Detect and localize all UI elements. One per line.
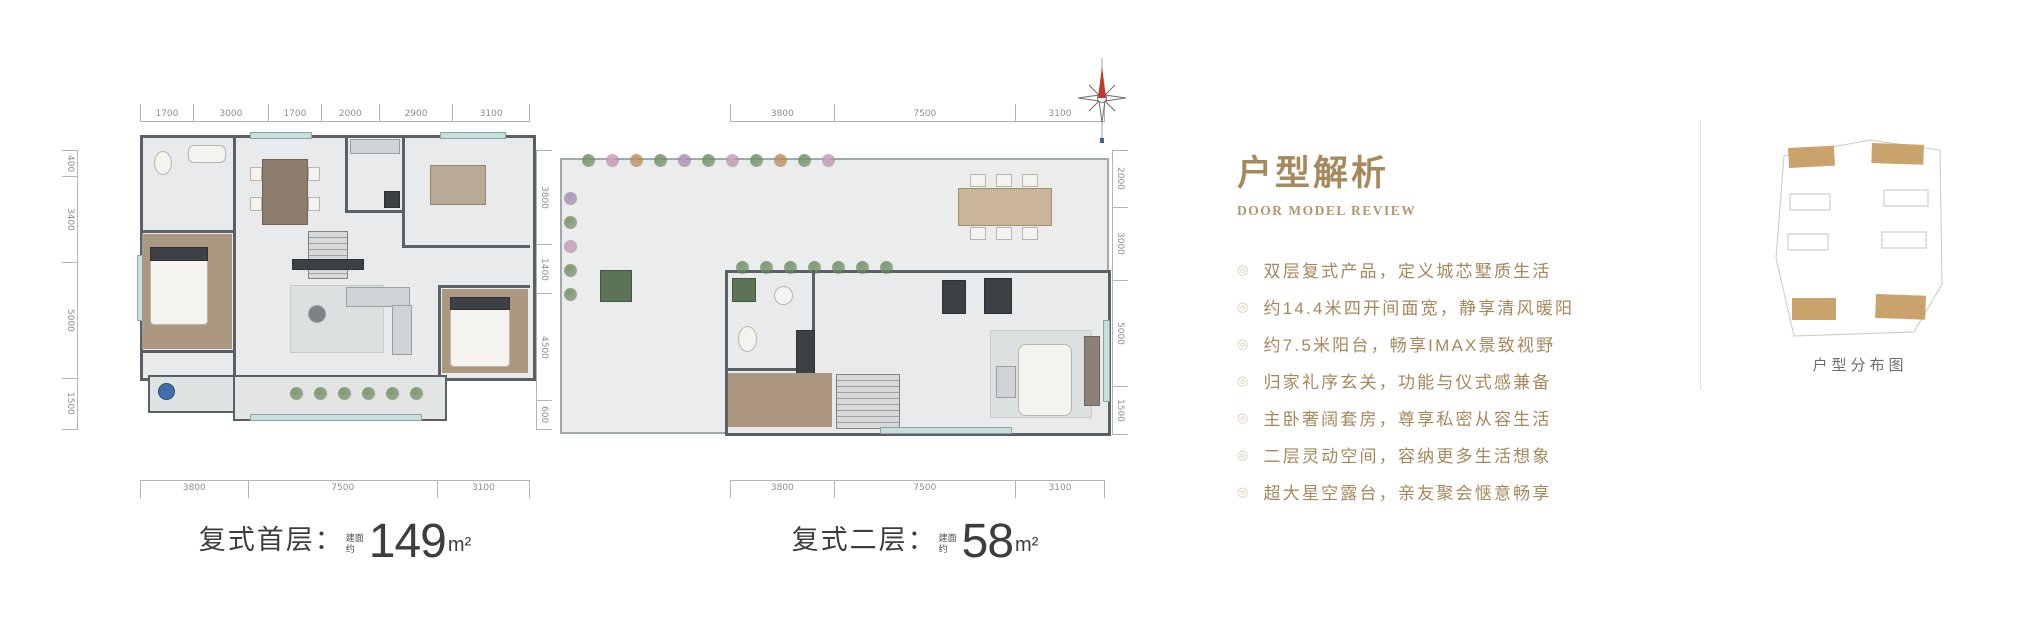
plant-icon	[410, 387, 423, 400]
panel-title: 户型解析	[1237, 145, 1677, 196]
chair	[996, 174, 1012, 187]
wall	[345, 135, 348, 210]
plant-icon	[750, 154, 763, 167]
chair	[1022, 174, 1038, 187]
vertical-divider	[1700, 120, 1701, 390]
building-footprint-highlighted	[1788, 146, 1835, 168]
feature-text: 约7.5米阳台，畅享IMAX景致视野	[1264, 331, 1556, 356]
chair	[1022, 227, 1038, 240]
staircase	[308, 231, 348, 279]
first-floor-top-dimensions: 170030001700200029003100	[140, 104, 530, 122]
dimension-label: 2000	[1112, 150, 1128, 207]
kitchen-counter	[350, 139, 400, 154]
dimension-label: 3000	[1112, 207, 1128, 280]
first-floor-left-dimensions: 400340050001500	[62, 150, 78, 430]
rosette-icon: ◎	[1237, 448, 1251, 461]
building-footprint-highlighted	[1792, 298, 1836, 320]
compass-icon	[1078, 58, 1126, 149]
brochure-page: 170030001700200029003100 400340050001500…	[0, 0, 2040, 640]
second-floor-top-dimensions: 380075003100	[730, 104, 1105, 122]
plant-icon	[702, 154, 715, 167]
window	[1103, 320, 1110, 402]
feature-text: 超大星空露台，亲友聚会惬意畅享	[1264, 479, 1552, 504]
coffee-table	[996, 366, 1016, 398]
plant-icon	[314, 387, 327, 400]
area-qualifier: 建面约	[939, 533, 959, 555]
plant-icon	[822, 154, 835, 167]
plant-icon	[784, 261, 797, 274]
wall	[402, 135, 405, 245]
feature-bullet: ◎ 二层灵动空间，容纳更多生活想象	[1237, 443, 1677, 465]
plant-icon	[564, 216, 577, 229]
dimension-label: 7500	[834, 104, 1015, 122]
rosette-icon: ◎	[1237, 374, 1251, 387]
terrace-dining-table	[958, 188, 1052, 226]
feature-text: 主卧奢阔套房，尊享私密从容生活	[1264, 405, 1552, 430]
dimension-label: 2900	[379, 104, 452, 122]
window	[250, 132, 312, 139]
plan-name: 复式首层：	[199, 518, 344, 564]
plant-icon	[726, 154, 739, 167]
rosette-icon: ◎	[1237, 263, 1251, 276]
table	[430, 165, 486, 205]
planter-box	[732, 278, 756, 302]
dimension-label: 400	[62, 150, 78, 176]
terrace-flowers-left	[564, 192, 577, 301]
dimension-label: 5000	[1112, 280, 1128, 386]
dimension-label: 1400	[536, 244, 552, 294]
site-map	[1772, 136, 1948, 349]
first-floor-plan-drawing	[140, 135, 530, 430]
tv-cabinet	[1084, 336, 1100, 406]
dimension-label: 7500	[834, 480, 1015, 498]
basin	[774, 286, 793, 305]
plant-icon	[582, 154, 595, 167]
plant-icon	[386, 387, 399, 400]
plant-icon	[798, 154, 811, 167]
feature-bullet: ◎ 双层复式产品，定义城芯墅质生活	[1237, 258, 1677, 280]
dimension-label: 1500	[1112, 386, 1128, 435]
dimension-label: 4500	[536, 293, 552, 400]
planter-box	[600, 270, 632, 302]
wall	[438, 285, 530, 288]
side-table	[308, 305, 326, 323]
feature-bullet: ◎ 超大星空露台，亲友聚会惬意畅享	[1237, 480, 1677, 502]
plant-icon	[564, 240, 577, 253]
bed-pillows	[150, 247, 208, 261]
plant-icon	[564, 288, 577, 301]
dimension-label: 2000	[321, 104, 379, 122]
balcony-plants	[290, 387, 423, 400]
chair	[970, 174, 986, 187]
tatami-room-floor	[728, 373, 832, 427]
plant-icon	[338, 387, 351, 400]
chair	[996, 227, 1012, 240]
wall	[345, 210, 402, 213]
feature-list: ◎ 双层复式产品，定义城芯墅质生活 ◎ 约14.4米四开间面宽，静享清风暖阳 ◎…	[1237, 258, 1677, 502]
fridge	[384, 191, 400, 208]
dimension-label: 1700	[268, 104, 321, 122]
dimension-label: 3400	[62, 176, 78, 262]
area-qualifier: 建面约	[346, 533, 366, 555]
building-footprint	[1882, 232, 1926, 248]
dimension-label: 3100	[437, 480, 530, 498]
feature-text: 约14.4米四开间面宽，静享清风暖阳	[1264, 294, 1575, 319]
dining-table	[262, 159, 308, 225]
dimension-label: 3000	[193, 104, 268, 122]
plant-icon	[654, 154, 667, 167]
dimension-label: 3800	[140, 480, 248, 498]
feature-text: 归家礼序玄关，功能与仪式感兼备	[1264, 368, 1552, 393]
first-floor-right-dimensions: 380014004500600	[536, 150, 552, 430]
staircase	[836, 374, 900, 429]
feature-text: 二层灵动空间，容纳更多生活想象	[1264, 442, 1552, 467]
plant-icon	[736, 261, 749, 274]
feature-bullet: ◎ 主卧奢阔套房，尊享私密从容生活	[1237, 406, 1677, 428]
area-unit: m²	[1015, 534, 1038, 557]
gym-equipment	[984, 278, 1012, 314]
wall	[140, 230, 233, 233]
dimension-label: 3100	[452, 104, 530, 122]
first-floor-bottom-dimensions: 380075003100	[140, 480, 530, 498]
plant-icon	[630, 154, 643, 167]
dimension-label: 1500	[62, 378, 78, 430]
site-map-caption: 户型分布图	[1772, 354, 1948, 375]
first-floor-caption: 复式首层： 建面约 149 m²	[140, 518, 530, 564]
toilet	[154, 151, 172, 175]
wall	[402, 245, 530, 248]
rosette-icon: ◎	[1237, 411, 1251, 424]
second-floor-right-dimensions: 2000300050001500	[1112, 150, 1128, 435]
second-floor-plan-drawing	[560, 130, 1105, 430]
chair	[250, 197, 262, 211]
building-footprint	[1790, 194, 1830, 210]
plant-icon	[362, 387, 375, 400]
terrace-flowers-top	[582, 154, 835, 167]
building-footprint	[1884, 190, 1928, 206]
building-footprint	[1788, 234, 1828, 250]
sofa	[346, 287, 410, 307]
wall	[233, 135, 236, 375]
rosette-icon: ◎	[1237, 337, 1251, 350]
chair	[308, 197, 320, 211]
chair	[308, 167, 320, 181]
building-footprint-highlighted	[1875, 294, 1926, 320]
gym-equipment	[942, 280, 966, 314]
feature-bullet: ◎ 约7.5米阳台，畅享IMAX景致视野	[1237, 332, 1677, 354]
plant-icon	[880, 261, 893, 274]
dimension-label: 3100	[1015, 480, 1105, 498]
bed-pillows	[450, 297, 510, 310]
site-map-svg	[1772, 136, 1948, 344]
feature-bullet: ◎ 归家礼序玄关，功能与仪式感兼备	[1237, 369, 1677, 391]
chair	[250, 167, 262, 181]
dimension-label: 7500	[248, 480, 437, 498]
plant-icon	[678, 154, 691, 167]
plant-icon	[564, 192, 577, 205]
washing-machine	[158, 383, 175, 400]
window	[880, 427, 1012, 434]
toilet	[738, 326, 757, 352]
plant-icon	[564, 264, 577, 277]
rosette-icon: ◎	[1237, 300, 1251, 313]
second-floor-caption: 复式二层： 建面约 58 m²	[700, 518, 1130, 564]
sofa-chaise	[392, 305, 412, 355]
bathtub	[188, 145, 226, 163]
dimension-label: 600	[536, 400, 552, 430]
plan-name: 复式二层：	[792, 518, 937, 564]
plant-icon	[856, 261, 869, 274]
plant-icon	[290, 387, 303, 400]
dimension-label: 3800	[536, 150, 552, 244]
analysis-panel: 户型解析 DOOR MODEL REVIEW ◎ 双层复式产品，定义城芯墅质生活…	[1237, 145, 1677, 517]
panel-subtitle: DOOR MODEL REVIEW	[1237, 203, 1677, 219]
second-floor-bottom-dimensions: 380075003100	[730, 480, 1105, 498]
wall	[438, 285, 441, 375]
window	[440, 132, 506, 139]
building-footprint-highlighted	[1871, 143, 1924, 165]
wall	[140, 350, 233, 353]
plant-icon	[832, 261, 845, 274]
dimension-label: 3800	[730, 480, 834, 498]
chair	[970, 227, 986, 240]
feature-bullet: ◎ 约14.4米四开间面宽，静享清风暖阳	[1237, 295, 1677, 317]
area-value: 149	[369, 520, 446, 564]
dimension-label: 5000	[62, 262, 78, 378]
plant-icon	[606, 154, 619, 167]
rosette-icon: ◎	[1237, 485, 1251, 498]
plant-icon	[774, 154, 787, 167]
area-value: 58	[962, 520, 1013, 564]
sofa	[1018, 344, 1072, 416]
tv-cabinet	[292, 259, 364, 270]
window	[250, 414, 422, 421]
area-unit: m²	[448, 534, 471, 557]
dimension-label: 3800	[730, 104, 834, 122]
feature-text: 双层复式产品，定义城芯墅质生活	[1264, 257, 1552, 282]
plant-icon	[760, 261, 773, 274]
dimension-label: 1700	[140, 104, 193, 122]
